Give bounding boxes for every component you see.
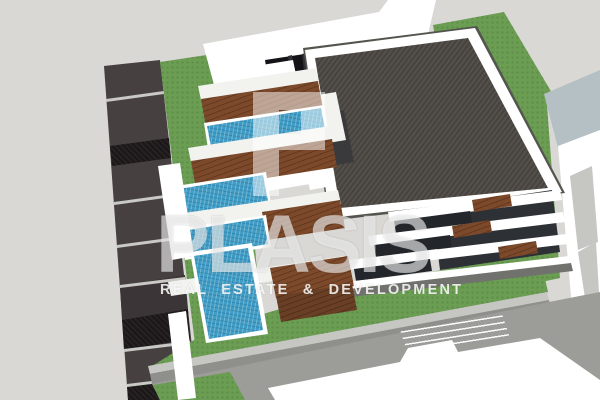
- watermark-logo-icon: [253, 92, 341, 196]
- watermark-tagline: REAL ESTATE & DEVELOPMENT: [160, 282, 480, 298]
- render-canvas: PLASIS REAL ESTATE & DEVELOPMENT: [0, 0, 600, 400]
- watermark-brand: PLASIS: [156, 204, 470, 286]
